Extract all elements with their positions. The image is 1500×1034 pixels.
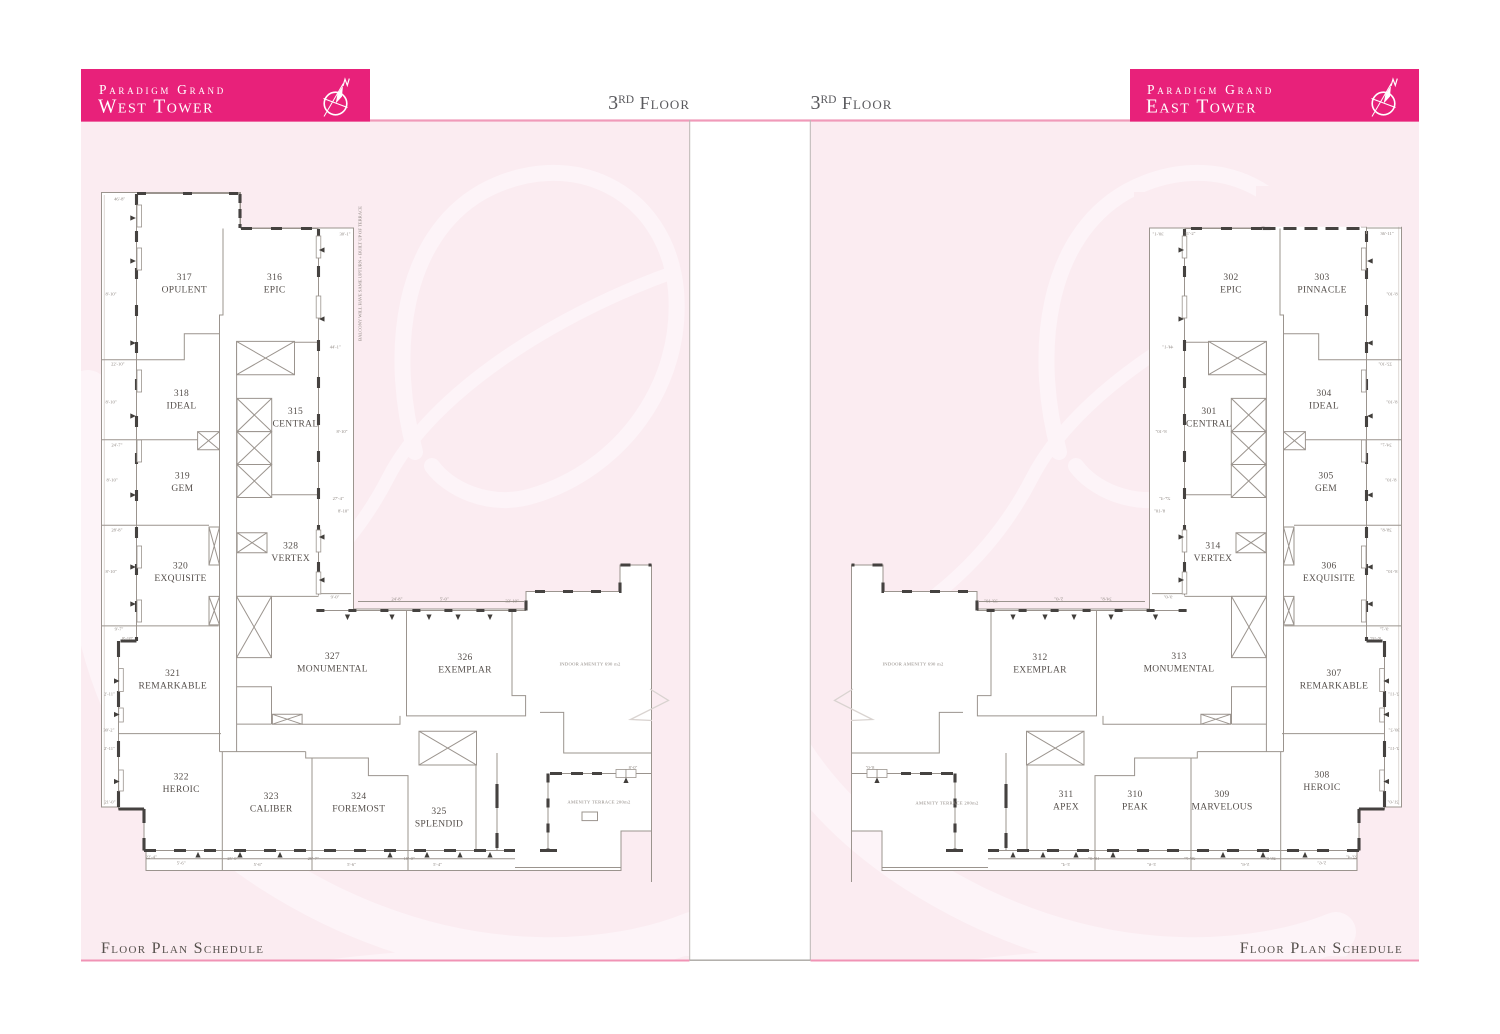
svg-text:24'-7": 24'-7" (111, 443, 122, 448)
svg-text:BALCONY WILL HAVE SAME UPTURN: BALCONY WILL HAVE SAME UPTURN + BUILT UP… (358, 206, 363, 341)
svg-text:5'-4": 5'-4" (433, 862, 442, 867)
svg-text:West Tower: West Tower (98, 97, 214, 118)
svg-text:INDOOR AMENITY 690 m2: INDOOR AMENITY 690 m2 (559, 662, 621, 667)
svg-text:Floor Plan Schedule: Floor Plan Schedule (1240, 940, 1403, 957)
svg-text:5'-6": 5'-6" (254, 862, 263, 867)
svg-text:2'-11": 2'-11" (104, 691, 115, 696)
svg-text:8'-10": 8'-10" (106, 400, 117, 405)
svg-text:33'-10": 33'-10" (505, 598, 519, 603)
svg-text:INDOOR AMENITY 690 m2: INDOOR AMENITY 690 m2 (882, 662, 944, 667)
svg-text:East Tower: East Tower (1146, 97, 1257, 118)
svg-text:8'-10": 8'-10" (122, 636, 133, 641)
svg-text:46'-8": 46'-8" (114, 197, 125, 202)
svg-text:27'-4": 27'-4" (333, 496, 344, 501)
svg-text:30'-1": 30'-1" (339, 232, 350, 237)
svg-text:AMENITY TERRACE 200m2: AMENITY TERRACE 200m2 (567, 800, 631, 805)
svg-text:2'-11": 2'-11" (104, 746, 115, 751)
svg-text:8'-10": 8'-10" (106, 569, 117, 574)
svg-text:5'-6": 5'-6" (347, 862, 356, 867)
svg-text:21'-0": 21'-0" (104, 799, 115, 804)
svg-text:8'-10": 8'-10" (336, 429, 347, 434)
svg-text:8'-0": 8'-0" (629, 765, 638, 770)
svg-text:22'-10": 22'-10" (111, 362, 125, 367)
svg-text:22'-4": 22'-4" (146, 855, 157, 860)
svg-text:44'-1": 44'-1" (330, 345, 341, 350)
svg-text:36'-11": 36'-11" (1380, 231, 1393, 236)
svg-text:8'-10": 8'-10" (338, 509, 349, 514)
svg-text:31'-2": 31'-2" (1184, 231, 1195, 236)
svg-text:5'-0": 5'-0" (440, 597, 449, 602)
svg-text:8'-10": 8'-10" (107, 478, 118, 483)
svg-text:Paradigm Grand: Paradigm Grand (1147, 82, 1274, 97)
svg-text:26'-7": 26'-7" (308, 856, 319, 861)
svg-text:9'-7": 9'-7" (115, 627, 124, 632)
svg-text:Paradigm Grand: Paradigm Grand (99, 82, 226, 97)
svg-text:25'-0": 25'-0" (227, 856, 238, 861)
svg-text:24'-8": 24'-8" (391, 597, 402, 602)
svg-text:30'-2": 30'-2" (103, 728, 114, 733)
svg-text:Floor Plan Schedule: Floor Plan Schedule (101, 940, 264, 957)
svg-text:28'-8": 28'-8" (111, 527, 122, 532)
svg-text:9'-0": 9'-0" (331, 595, 340, 600)
svg-text:8'-10": 8'-10" (105, 292, 116, 297)
svg-text:5'-6": 5'-6" (177, 861, 186, 866)
svg-text:18'-0": 18'-0" (404, 856, 415, 861)
svg-text:AMENITY TERRACE 200m2: AMENITY TERRACE 200m2 (915, 801, 979, 806)
